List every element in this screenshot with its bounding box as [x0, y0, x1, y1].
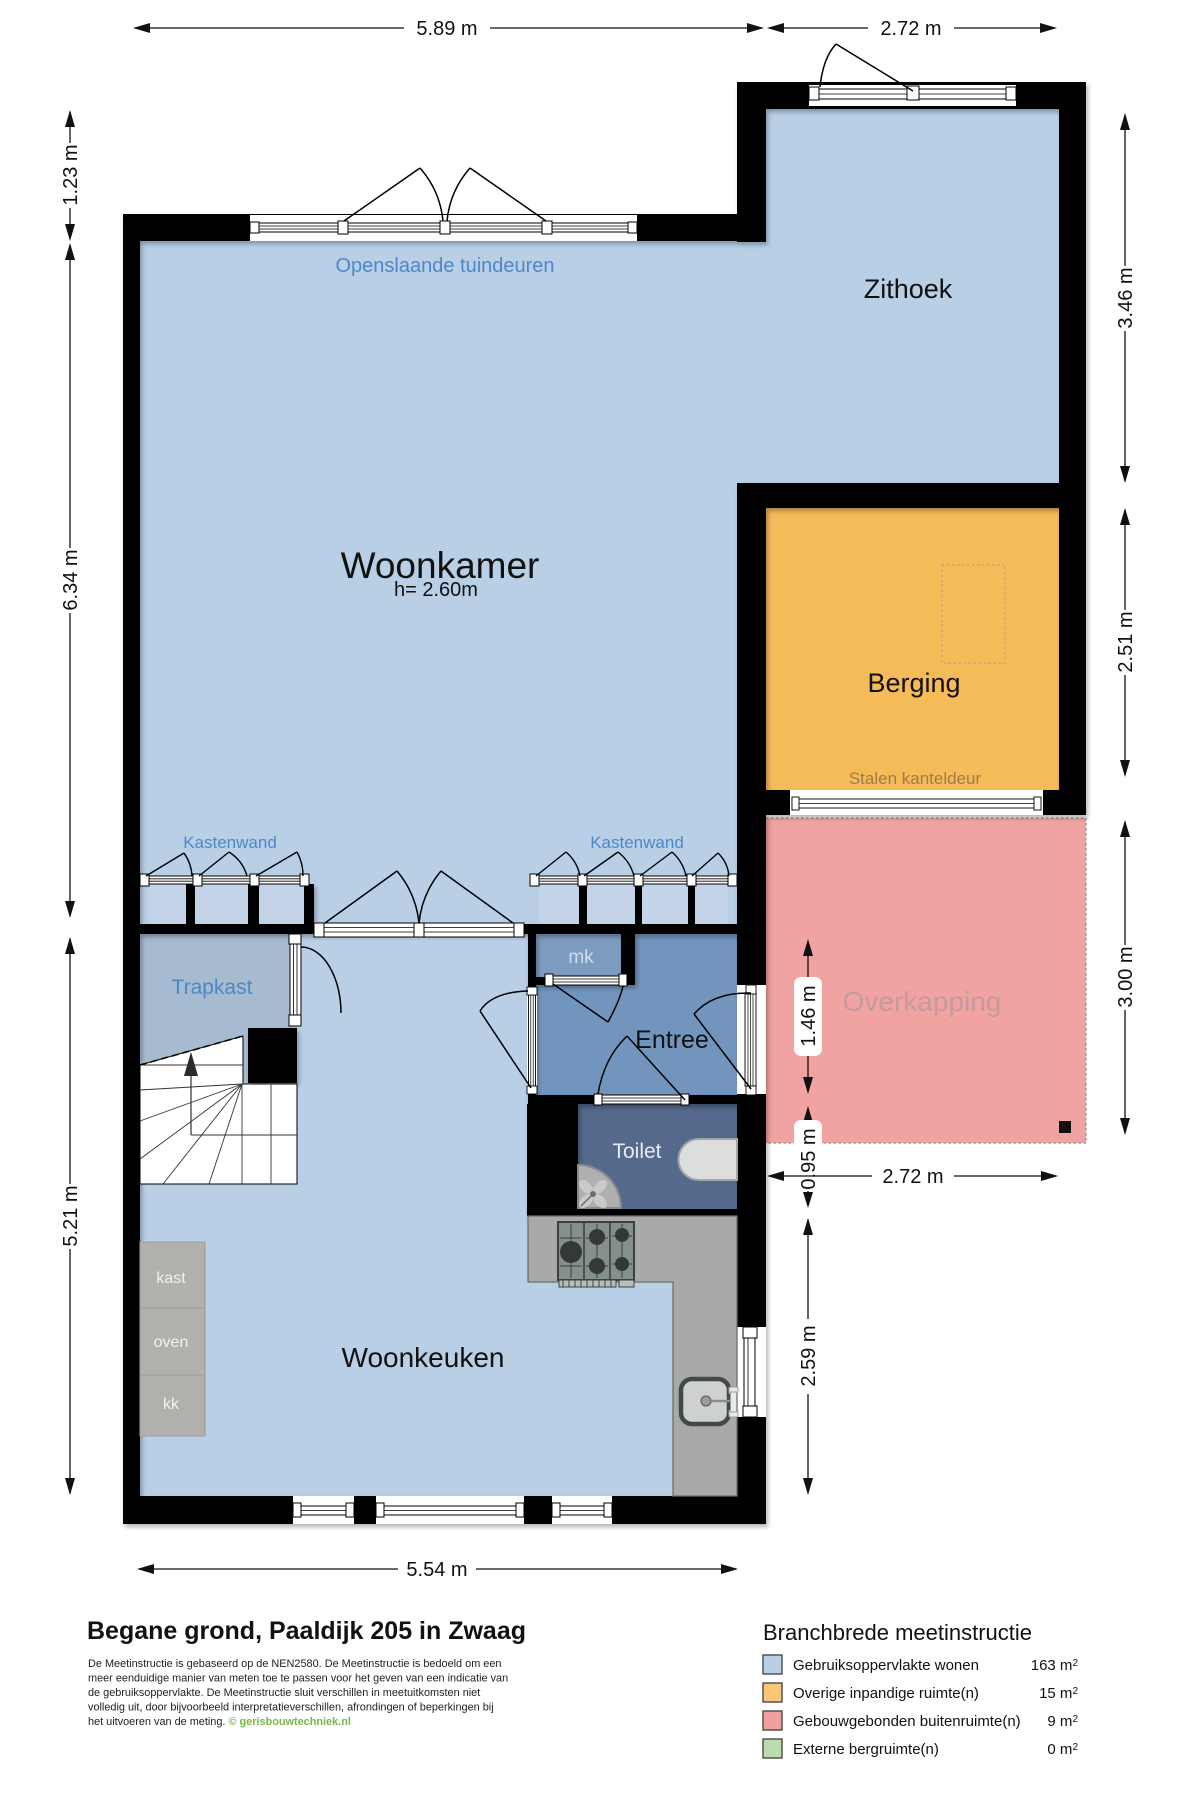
- svg-text:2.72 m: 2.72 m: [880, 18, 941, 40]
- svg-text:Trapkast: Trapkast: [172, 976, 253, 999]
- svg-text:volledig uit, door bijvoorbeel: volledig uit, door bijvoorbeeld interpre…: [88, 1702, 494, 1714]
- svg-text:Entree: Entree: [635, 1026, 709, 1054]
- svg-text:5.89 m: 5.89 m: [416, 18, 477, 40]
- svg-text:Kastenwand: Kastenwand: [590, 833, 684, 852]
- svg-text:2.72 m: 2.72 m: [882, 1166, 943, 1188]
- svg-text:0.95 m: 0.95 m: [798, 1128, 820, 1189]
- svg-text:1.23 m: 1.23 m: [60, 144, 82, 205]
- svg-text:2.51 m: 2.51 m: [1115, 611, 1137, 672]
- svg-text:Woonkeuken: Woonkeuken: [342, 1342, 505, 1373]
- svg-text:15 m2: 15 m2: [1039, 1685, 1078, 1702]
- svg-text:Overkapping: Overkapping: [843, 986, 1002, 1017]
- svg-text:Gebouwgebonden buitenruimte(n): Gebouwgebonden buitenruimte(n): [793, 1713, 1021, 1730]
- svg-text:6.34 m: 6.34 m: [60, 549, 82, 610]
- svg-text:0 m2: 0 m2: [1047, 1741, 1078, 1758]
- svg-text:5.54 m: 5.54 m: [406, 1559, 467, 1581]
- svg-text:h= 2.60m: h= 2.60m: [394, 579, 478, 601]
- svg-text:5.21 m: 5.21 m: [60, 1185, 82, 1246]
- svg-text:Stalen kanteldeur: Stalen kanteldeur: [849, 769, 982, 788]
- svg-text:kast: kast: [156, 1270, 186, 1287]
- svg-text:Berging: Berging: [867, 668, 960, 698]
- svg-text:Gebruiksoppervlakte wonen: Gebruiksoppervlakte wonen: [793, 1657, 979, 1674]
- svg-text:mk: mk: [568, 947, 594, 968]
- svg-text:Kastenwand: Kastenwand: [183, 833, 277, 852]
- svg-text:163 m2: 163 m2: [1031, 1657, 1079, 1674]
- svg-text:Branchbrede meetinstructie: Branchbrede meetinstructie: [763, 1620, 1032, 1645]
- svg-text:1.46 m: 1.46 m: [798, 985, 820, 1046]
- svg-text:Toilet: Toilet: [612, 1140, 661, 1163]
- svg-text:3.46 m: 3.46 m: [1115, 267, 1137, 328]
- svg-text:oven: oven: [154, 1334, 189, 1351]
- svg-text:3.00 m: 3.00 m: [1115, 946, 1137, 1007]
- svg-text:kk: kk: [163, 1396, 180, 1413]
- svg-text:Overige inpandige ruimte(n): Overige inpandige ruimte(n): [793, 1685, 979, 1702]
- svg-text:9 m2: 9 m2: [1047, 1713, 1078, 1730]
- svg-text:De Meetinstructie is gebaseerd: De Meetinstructie is gebaseerd op de NEN…: [88, 1658, 501, 1670]
- svg-text:Openslaande tuindeuren: Openslaande tuindeuren: [335, 255, 554, 277]
- svg-text:2.59 m: 2.59 m: [798, 1325, 820, 1386]
- svg-text:Zithoek: Zithoek: [864, 274, 953, 304]
- svg-text:Begane grond, Paaldijk 205 in: Begane grond, Paaldijk 205 in Zwaag: [87, 1617, 526, 1645]
- svg-text:meer eenduidige manier van met: meer eenduidige manier van meten toe te …: [88, 1673, 508, 1685]
- svg-text:het uitvoeren van de meting. ©: het uitvoeren van de meting. © gerisbouw…: [88, 1716, 351, 1728]
- svg-text:de gebruiksoppervlakte. De Mee: de gebruiksoppervlakte. De Meetinstructi…: [88, 1687, 480, 1699]
- svg-text:Externe bergruimte(n): Externe bergruimte(n): [793, 1741, 939, 1758]
